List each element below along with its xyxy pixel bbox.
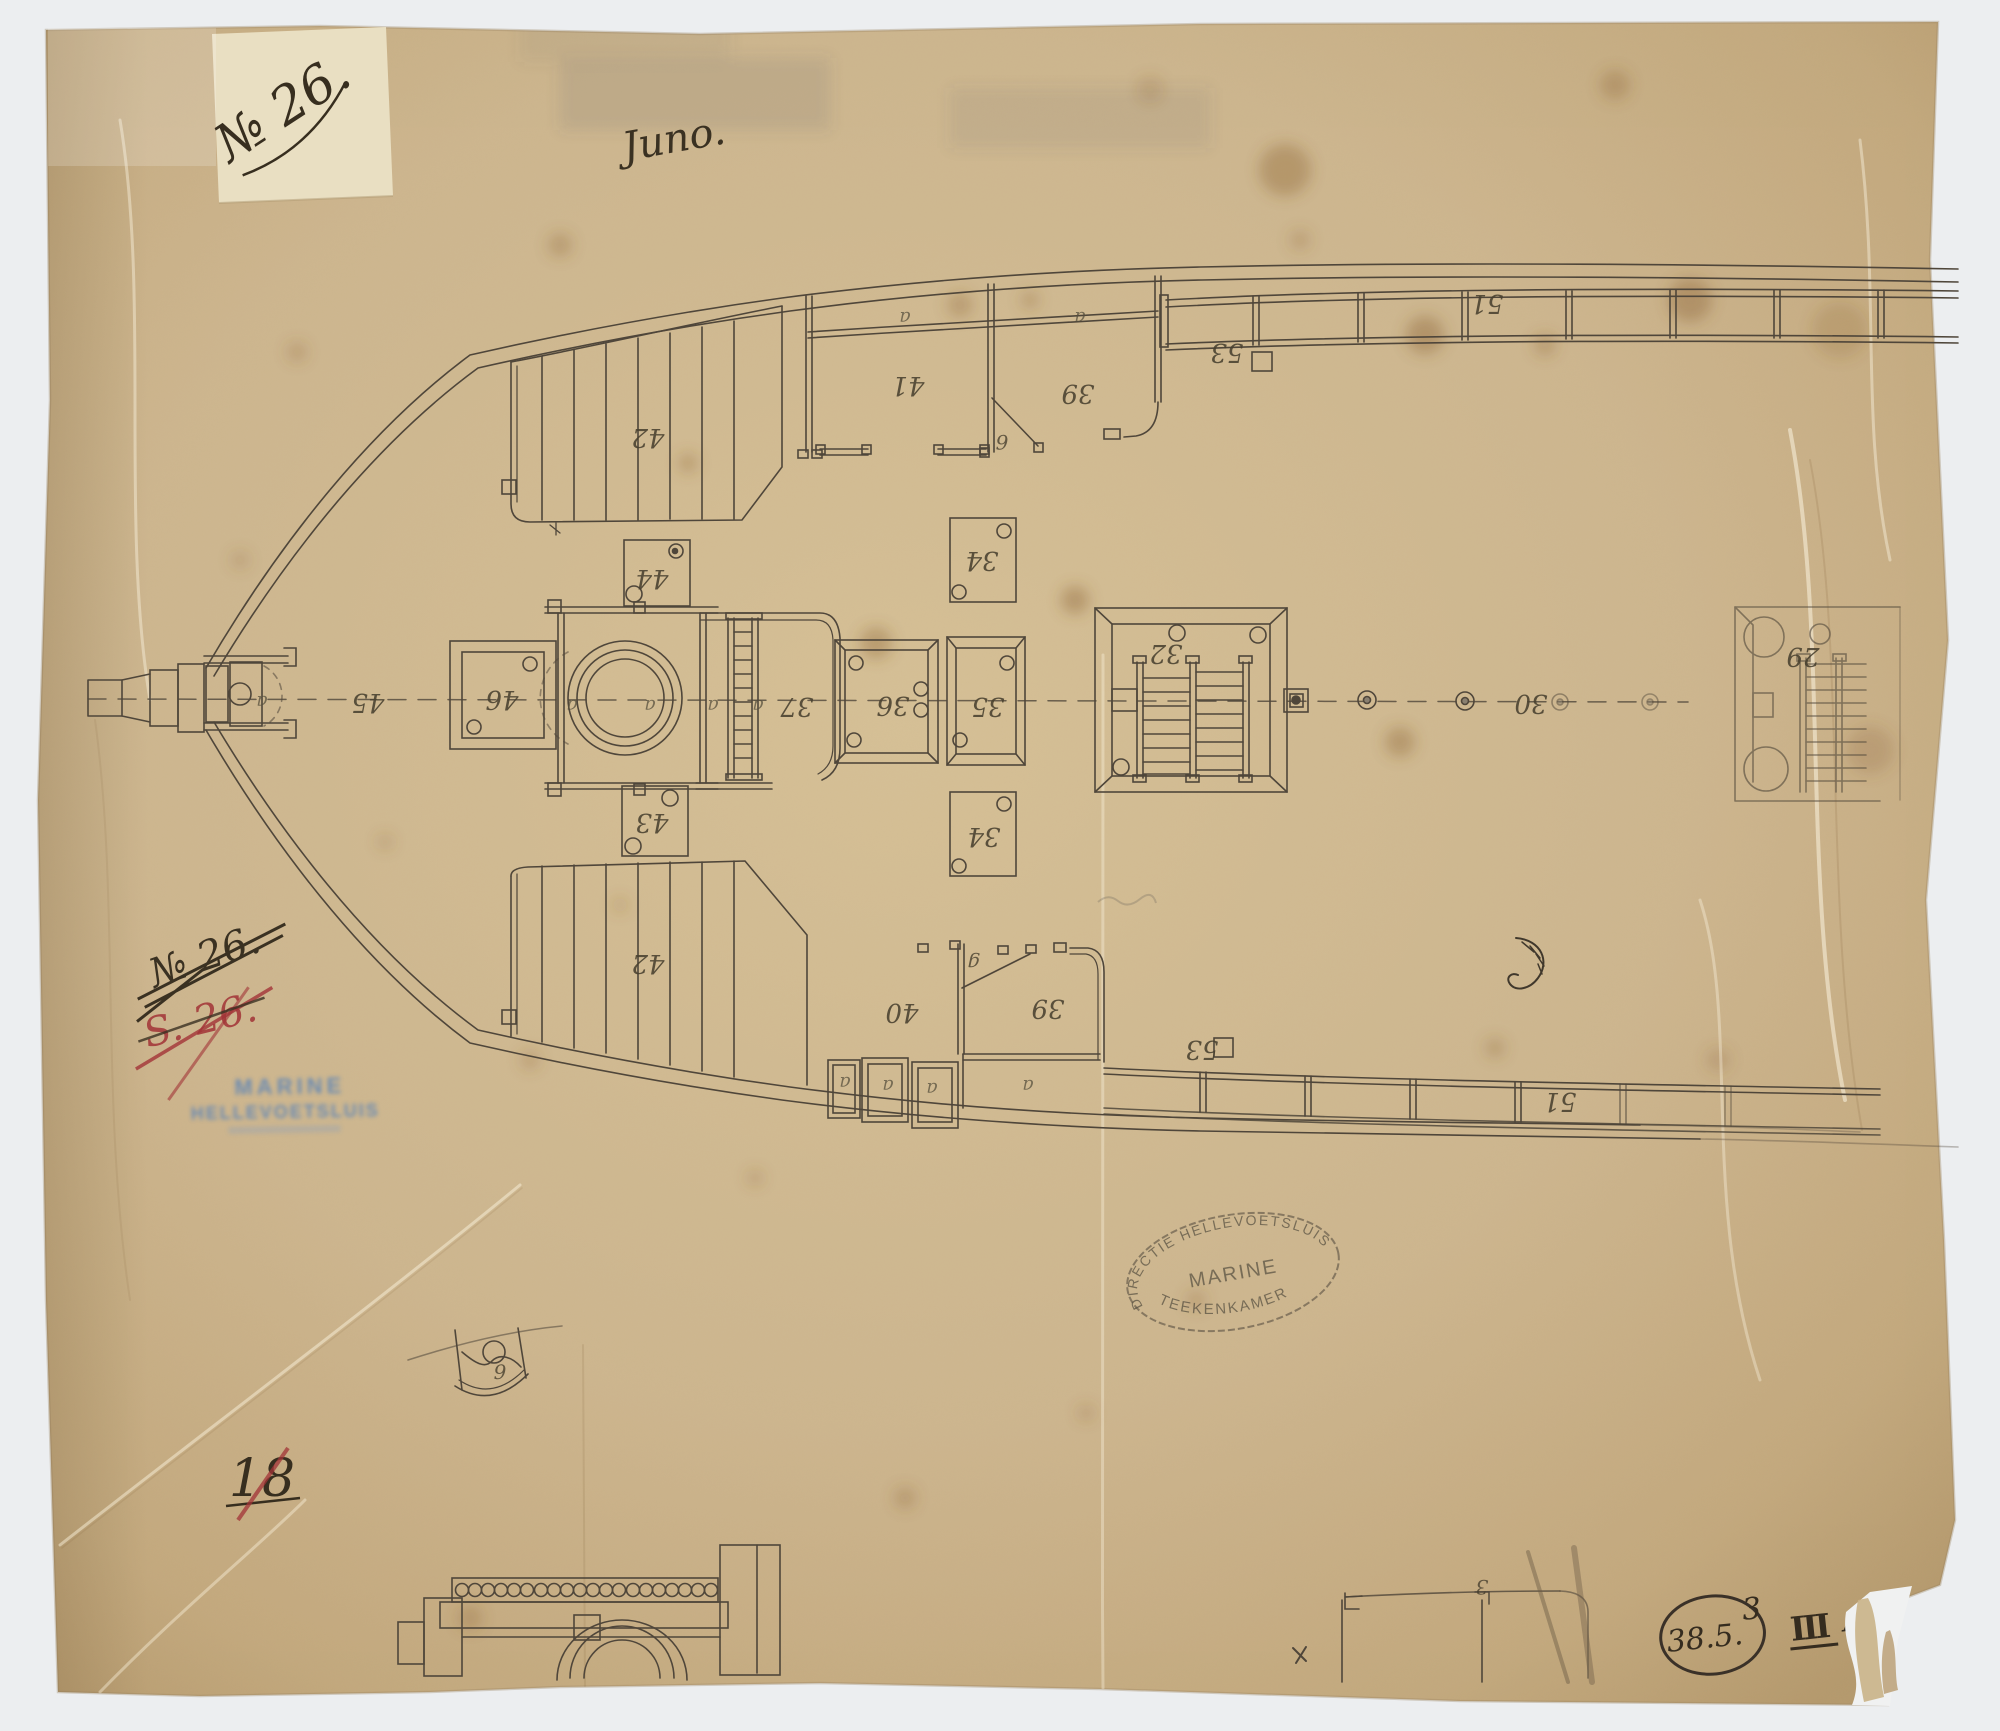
stamp-blue-line1: MARINE — [234, 1073, 345, 1100]
shelf-suffix-roman: III — [1788, 1606, 1831, 1649]
label-42-bottom: 42 — [631, 948, 665, 978]
label-45: 45 — [351, 687, 385, 717]
label-a-locker-1: a — [839, 1072, 850, 1094]
label-39-top: 39 — [1061, 378, 1094, 408]
label-46: 46 — [485, 684, 519, 714]
label-a-locker-3: a — [926, 1078, 937, 1100]
label-34-bottom: 34 — [967, 821, 1000, 851]
plan-canvas: № 26. Juno. № 26. S. 26. MARINE HELLEVOE… — [0, 0, 2000, 1731]
label-3: 3 — [1476, 1575, 1489, 1599]
label-a-cl-2: a — [644, 695, 655, 717]
label-35: 35 — [971, 691, 1004, 721]
label-34-top: 34 — [965, 545, 998, 575]
stamp-blue-line2: HELLEVOETSLUIS — [191, 1100, 380, 1123]
label-a-panel-4: a — [1022, 1075, 1033, 1097]
shelf-mark-superscript: 3 — [1740, 1591, 1763, 1628]
label-51-top: 51 — [1470, 288, 1503, 318]
label-29: 29 — [1786, 641, 1820, 671]
label-a-band-top-2: a — [1074, 307, 1085, 329]
label-42-top: 42 — [631, 422, 665, 452]
label-39-bottom: 39 — [1031, 993, 1064, 1023]
label-53-top: 53 — [1210, 337, 1243, 367]
label-a-band-top-1: a — [899, 307, 910, 329]
label-51-bottom: 51 — [1543, 1086, 1576, 1116]
label-30: 30 — [1514, 688, 1547, 718]
label-32: 32 — [1149, 638, 1182, 668]
label-a-cl-3: a — [707, 695, 718, 717]
label-a-cl-4: a — [752, 695, 763, 717]
label-a-bow: a — [256, 691, 267, 713]
label-40: 40 — [885, 997, 919, 1027]
paper-texture — [0, 0, 2000, 1731]
label-a-locker-2: a — [882, 1075, 893, 1097]
label-41: 41 — [891, 370, 925, 400]
label-6-brace-top: 6 — [995, 430, 1008, 454]
label-37: 37 — [780, 691, 814, 721]
label-g-brace-bottom: g — [968, 952, 981, 976]
label-53-bottom: 53 — [1185, 1034, 1218, 1064]
label-44: 44 — [635, 563, 669, 593]
scanned-ship-plan: № 26. Juno. № 26. S. 26. MARINE HELLEVOE… — [0, 0, 2000, 1731]
label-9: 9 — [494, 1360, 507, 1384]
label-36: 36 — [876, 690, 909, 720]
label-a-cl-1: a — [566, 695, 577, 717]
label-43: 43 — [635, 807, 669, 837]
